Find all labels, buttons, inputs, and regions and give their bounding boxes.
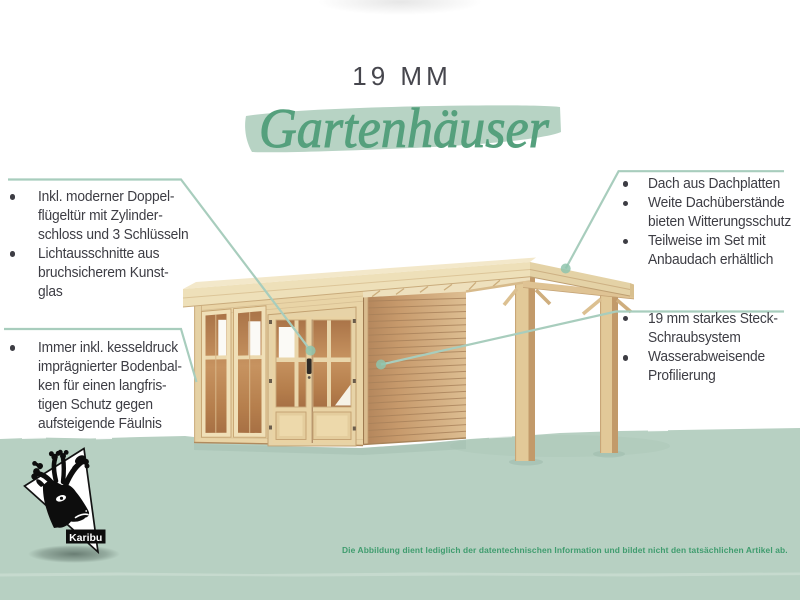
svg-text:Karibu: Karibu	[69, 532, 102, 544]
